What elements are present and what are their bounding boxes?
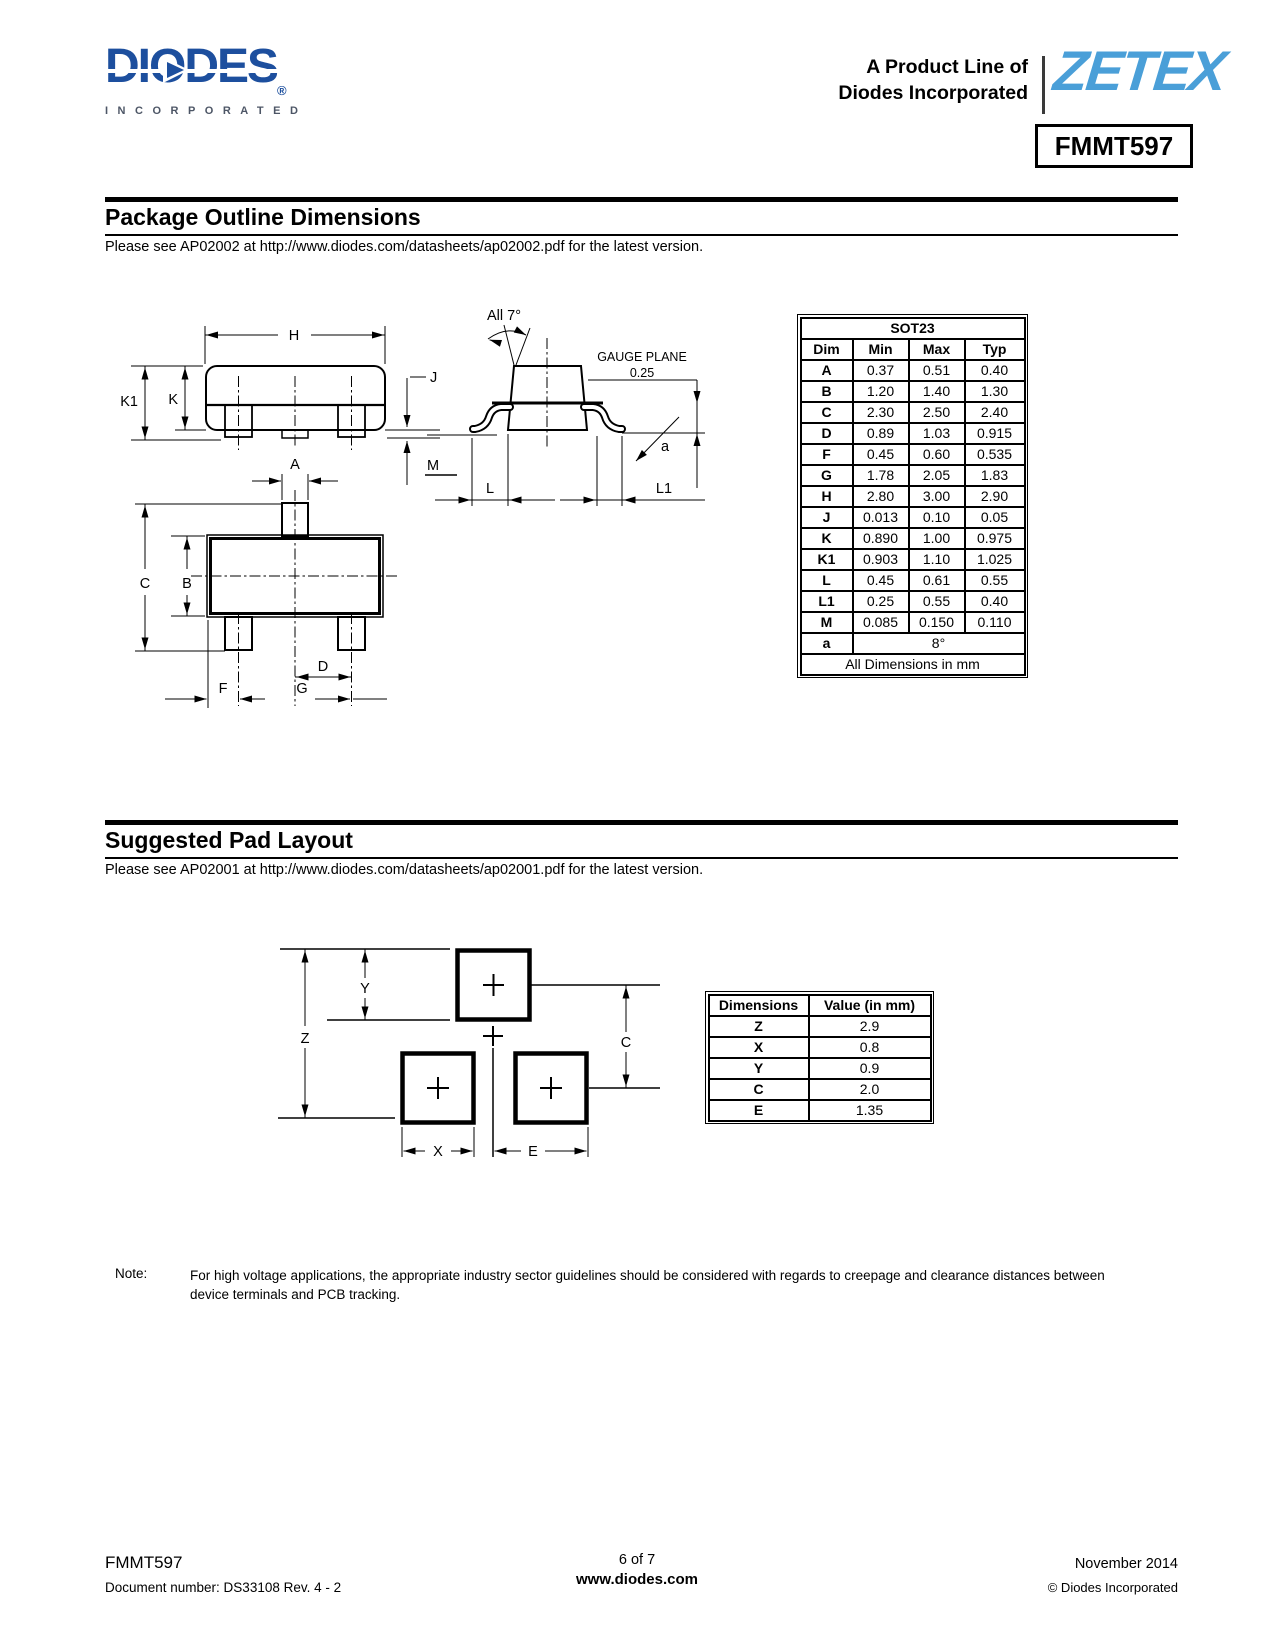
pad-dimensions-table: Dimensions Value (in mm) Z2.9X0.8Y0.9C2.…: [705, 991, 934, 1124]
note-label: Note:: [115, 1266, 147, 1281]
registered-mark: ®: [277, 68, 287, 114]
table-row: K10.9031.101.025: [801, 549, 1025, 570]
table-row: X0.8: [709, 1037, 931, 1058]
footer-copyright: © Diodes Incorporated: [878, 1576, 1178, 1599]
table-row: K0.8901.000.975: [801, 528, 1025, 549]
package-outline-title: Package Outline Dimensions: [105, 204, 421, 231]
pad-dim-label-x: X: [433, 1144, 443, 1160]
zetex-logo: ZETEX: [1051, 40, 1228, 102]
col-header-max: Max: [909, 339, 965, 360]
note-text: For high voltage applications, the appro…: [190, 1266, 1130, 1304]
dim-label-h: H: [289, 328, 299, 344]
table-row: C2.0: [709, 1079, 931, 1100]
pad-layout-subtitle: Please see AP02001 at http://www.diodes.…: [105, 862, 703, 878]
table-row: M0.0850.1500.110: [801, 612, 1025, 633]
footer-doc-number: Document number: DS33108 Rev. 4 - 2: [105, 1580, 341, 1595]
table-row: E1.35: [709, 1100, 931, 1121]
dim-label-g: G: [296, 681, 307, 697]
dim-label-b: B: [182, 576, 192, 592]
pad-table-body: Z2.9X0.8Y0.9C2.0E1.35: [709, 1016, 931, 1121]
pad-dim-label-c: C: [621, 1035, 631, 1051]
pad-dim-label-e: E: [528, 1144, 538, 1160]
footer-right: November 2014 © Diodes Incorporated: [878, 1553, 1178, 1599]
pad-dim-label-y: Y: [360, 981, 370, 997]
table-row-angle: a 8°: [801, 633, 1025, 654]
package-outline-diagram: H K1 K J M A C B D F G All 7° GAUGE PLAN…: [105, 278, 765, 718]
dim-label-d: D: [318, 659, 328, 675]
dim-label-l: L: [486, 481, 494, 497]
pad-layout-diagram: Y Z C X E: [255, 885, 675, 1170]
pad-layout-title: Suggested Pad Layout: [105, 827, 353, 854]
table-row: J0.0130.100.05: [801, 507, 1025, 528]
footer-date: November 2014: [878, 1553, 1178, 1576]
dim-label-j: J: [430, 370, 437, 386]
diodes-logo-text: DIODES®: [105, 44, 345, 101]
table-row: H2.803.002.90: [801, 486, 1025, 507]
diodes-logo-subtext: INCORPORATED: [105, 105, 345, 117]
col-header-value: Value (in mm): [809, 995, 931, 1016]
section-rule: [105, 234, 1178, 236]
table-footer-row: All Dimensions in mm: [801, 654, 1025, 675]
sot23-table-body: A0.370.510.40B1.201.401.30C2.302.502.40D…: [801, 360, 1025, 633]
table-row: C2.302.502.40: [801, 402, 1025, 423]
logo-stripe: [106, 69, 310, 73]
gauge-plane-label: GAUGE PLANE: [597, 350, 687, 364]
footer-center: 6 of 7 www.diodes.com: [487, 1550, 787, 1590]
footer-part-number: FMMT597: [105, 1553, 182, 1573]
col-header-typ: Typ: [965, 339, 1025, 360]
sot23-table: SOT23 Dim Min Max Typ A0.370.510.40B1.20…: [797, 314, 1028, 678]
dim-label-k1: K1: [120, 394, 138, 410]
dim-label-l1: L1: [656, 481, 672, 497]
product-line-text: A Product Line of Diodes Incorporated: [780, 54, 1028, 106]
table-row: D0.891.030.915: [801, 423, 1025, 444]
sot23-table-title: SOT23: [801, 318, 1025, 339]
dim-label-alpha: a: [661, 439, 670, 455]
col-header-min: Min: [853, 339, 909, 360]
angle-note-label: All 7°: [487, 308, 521, 324]
dim-label-m: M: [427, 458, 439, 474]
table-row: Z2.9: [709, 1016, 931, 1037]
footer-website: www.diodes.com: [487, 1570, 787, 1590]
pad-layout-drawing: [278, 949, 660, 1157]
header-divider: [1042, 56, 1045, 114]
section-rule: [105, 820, 1178, 825]
table-row: F0.450.600.535: [801, 444, 1025, 465]
dim-label-a: A: [290, 457, 300, 473]
pad-dim-label-z: Z: [301, 1031, 310, 1047]
table-row: B1.201.401.30: [801, 381, 1025, 402]
table-row: A0.370.510.40: [801, 360, 1025, 381]
dim-label-f: F: [219, 681, 228, 697]
table-row: Y0.9: [709, 1058, 931, 1079]
section-rule: [105, 857, 1178, 859]
table-row: L0.450.610.55: [801, 570, 1025, 591]
part-number-box: FMMT597: [1035, 124, 1193, 168]
table-row: G1.782.051.83: [801, 465, 1025, 486]
gauge-value-label: 0.25: [630, 366, 654, 380]
datasheet-page: DIODES® INCORPORATED A Product Line of D…: [0, 0, 1275, 1650]
table-row: L10.250.550.40: [801, 591, 1025, 612]
section-rule: [105, 197, 1178, 202]
col-header-dim: Dim: [801, 339, 853, 360]
footer-page-number: 6 of 7: [487, 1550, 787, 1570]
dim-label-c: C: [140, 576, 150, 592]
col-header-dimensions: Dimensions: [709, 995, 809, 1016]
package-top-view: [135, 474, 399, 708]
dim-label-k: K: [168, 392, 178, 408]
diodes-logo: DIODES® INCORPORATED: [105, 44, 345, 117]
package-outline-subtitle: Please see AP02002 at http://www.diodes.…: [105, 239, 703, 255]
